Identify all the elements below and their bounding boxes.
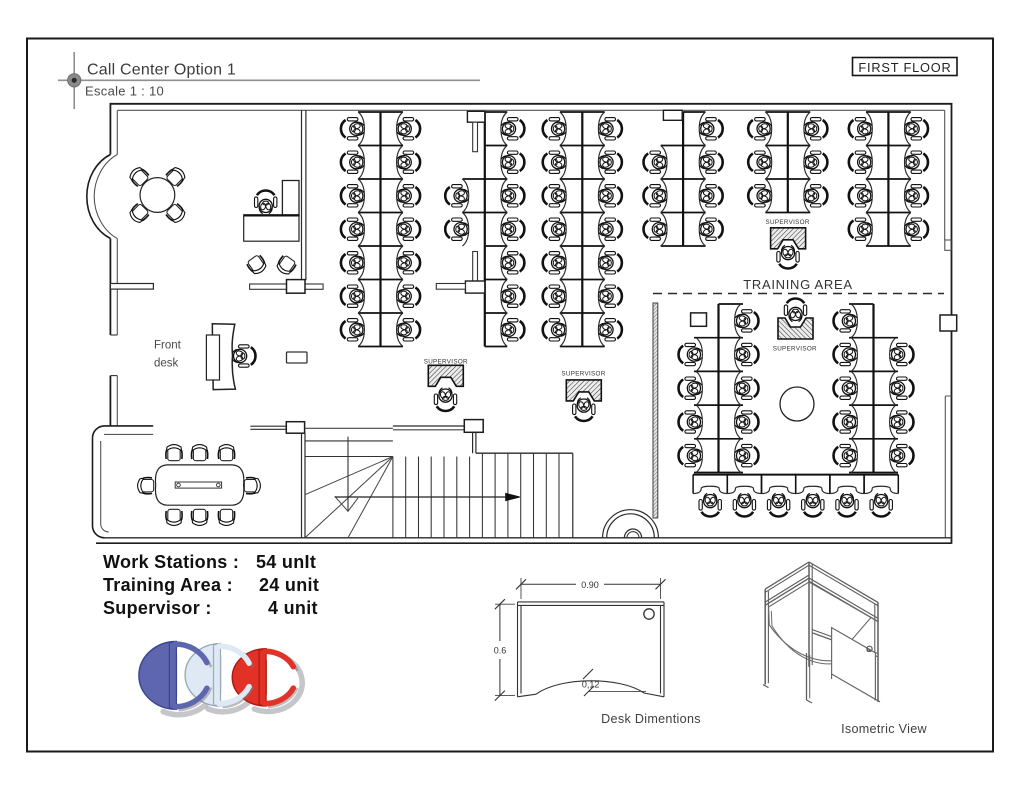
svg-text:Front: Front [154,340,182,352]
svg-text:Call Center Option 1: Call Center Option 1 [87,62,236,79]
svg-text:Training Area :: Training Area : [103,575,233,595]
svg-text:0,12: 0,12 [582,680,600,690]
svg-text:54 unIt: 54 unIt [256,552,316,572]
svg-text:Escale 1 : 10: Escale 1 : 10 [85,84,164,99]
svg-text:SUPERVISOR: SUPERVISOR [424,359,468,366]
svg-text:TRAINING AREA: TRAINING AREA [743,277,853,292]
svg-text:0.90: 0.90 [581,580,599,590]
svg-text:Work Stations :: Work Stations : [103,552,239,572]
svg-text:0.6: 0.6 [494,646,507,656]
svg-text:SUPERVISOR: SUPERVISOR [766,219,810,226]
svg-text:SUPERVISOR: SUPERVISOR [561,371,605,378]
svg-text:desk: desk [154,358,179,370]
svg-text:SUPERVISOR: SUPERVISOR [773,346,817,353]
svg-text:24 unit: 24 unit [259,575,319,595]
svg-text:FIRST FLOOR: FIRST FLOOR [858,60,951,75]
svg-text:Isometric View: Isometric View [841,722,927,736]
svg-text:Desk Dimentions: Desk Dimentions [601,712,701,726]
svg-text:Supervisor :: Supervisor : [103,598,212,618]
svg-text:4 unit: 4 unit [268,598,318,618]
